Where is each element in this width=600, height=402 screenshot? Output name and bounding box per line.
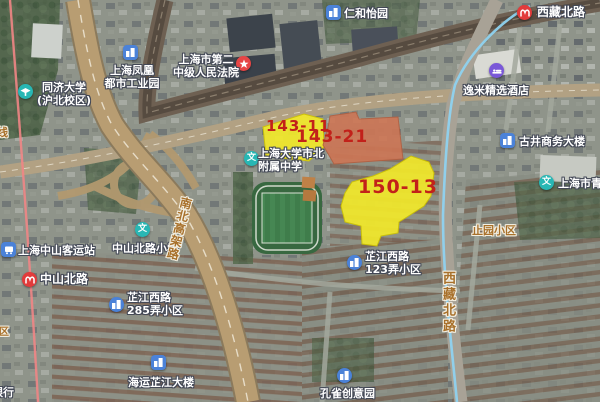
area-label-zhiyuan: 止园小区 xyxy=(472,224,516,237)
school-glyph: 文 xyxy=(138,225,147,234)
poi-tongji-line1: 同济大学 xyxy=(30,81,98,94)
parcel-label-150-13: 150-13 xyxy=(358,181,438,194)
poi-zhijiang-123-line1: 芷江西路 xyxy=(365,250,421,263)
poi-zhijiang-285-line1: 芷江西路 xyxy=(127,291,183,304)
metro-icon[interactable] xyxy=(517,5,532,20)
poi-yimi-hotel[interactable]: 逸米精选酒店 xyxy=(463,84,529,97)
edge-label-rail-line: 线 xyxy=(0,126,8,139)
poi-zhijiang-285[interactable]: 芷江西路 285弄小区 xyxy=(127,291,183,317)
poi-shanghaishiqing[interactable]: 上海市青 xyxy=(558,177,600,190)
metro-icon[interactable] xyxy=(22,272,37,287)
poi-fenghuang-line1: 上海凤凰 xyxy=(100,64,164,77)
poi-shibei-school[interactable]: 上海大学市北 附属中学 xyxy=(258,147,324,173)
school-icon[interactable]: 文 xyxy=(135,222,150,237)
school-icon[interactable]: 文 xyxy=(244,151,259,166)
residence-icon[interactable] xyxy=(347,255,362,270)
poi-fenghuang-line2: 都市工业园 xyxy=(100,77,164,90)
school-glyph: 文 xyxy=(247,154,256,163)
school-glyph: 文 xyxy=(542,178,551,187)
building-icon[interactable] xyxy=(326,5,341,20)
poi-kongque-park[interactable]: 孔雀创意园 xyxy=(320,387,375,400)
school-icon[interactable]: 文 xyxy=(539,175,554,190)
poi-tongji-line2: (沪北校区) xyxy=(30,94,98,107)
edge-label-district: 区 xyxy=(0,326,9,339)
poi-tongji-university[interactable]: 同济大学 (沪北校区) xyxy=(30,81,98,107)
road-label-xizangbeilu: 西藏北路 xyxy=(441,271,454,335)
poi-coach-station[interactable]: 上海中山客运站 xyxy=(18,244,95,257)
poi-courthouse-line1: 上海市第二 xyxy=(172,53,240,66)
station-xizangbeilu[interactable]: 西藏北路 xyxy=(537,6,585,19)
building-icon[interactable] xyxy=(500,133,515,148)
map-graphics xyxy=(0,0,600,402)
poi-zhijiang-123-line2: 123弄小区 xyxy=(365,263,421,276)
poi-courthouse[interactable]: 上海市第二 中级人民法院 xyxy=(172,53,240,79)
poi-shibei-line1: 上海大学市北 xyxy=(258,147,324,160)
poi-shibei-line2: 附属中学 xyxy=(258,160,324,173)
parcel-label-143-21: 143-21 xyxy=(296,131,368,144)
hotel-icon[interactable] xyxy=(489,63,504,78)
station-zhongshanbeilu[interactable]: 中山北路 xyxy=(40,273,88,286)
edge-label-bank: 银行 xyxy=(0,386,14,399)
residence-icon[interactable] xyxy=(109,297,124,312)
poi-gujing-tower[interactable]: 古井商务大楼 xyxy=(519,135,585,148)
building-icon[interactable] xyxy=(123,45,138,60)
creative-park-icon[interactable] xyxy=(337,368,352,383)
poi-fenghuang-park[interactable]: 上海凤凰 都市工业园 xyxy=(100,64,164,90)
poi-haiyun-tower[interactable]: 海运芷江大楼 xyxy=(128,376,194,389)
poi-zhijiang-285-line2: 285弄小区 xyxy=(127,304,183,317)
satellite-map[interactable]: 文 文 文 仁和怡园 西藏北路 上海市第二 中级人民法院 同济大学 (沪北校区)… xyxy=(0,0,600,402)
poi-zhijiang-123[interactable]: 芷江西路 123弄小区 xyxy=(365,250,421,276)
poi-renheyiyuan[interactable]: 仁和怡园 xyxy=(344,7,388,20)
building-icon[interactable] xyxy=(151,355,166,370)
bus-station-icon[interactable] xyxy=(1,242,16,257)
poi-courthouse-line2: 中级人民法院 xyxy=(172,66,240,79)
